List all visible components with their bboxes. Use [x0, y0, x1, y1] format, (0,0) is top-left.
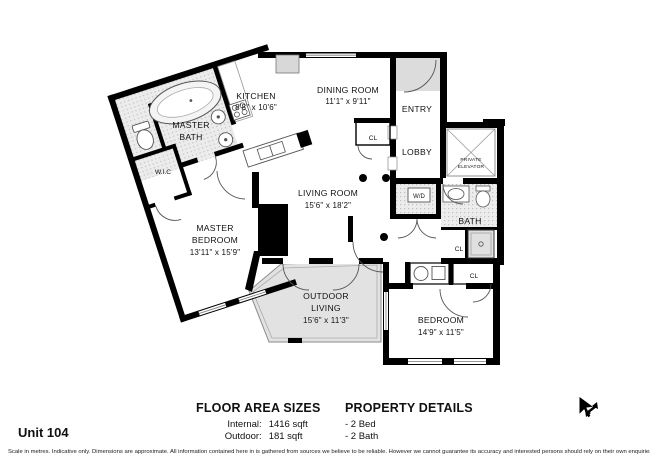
master-bedroom-label-2: BEDROOM: [192, 235, 238, 245]
kitchen-label: KITCHEN: [236, 91, 275, 101]
outdoor-label: Outdoor:: [212, 431, 262, 443]
living-label: LIVING ROOM: [298, 188, 358, 198]
dining-label: DINING ROOM: [317, 85, 379, 95]
outdoor-label-1: OUTDOOR: [303, 291, 349, 301]
structural-columns: [359, 174, 390, 241]
fridge-icon: [276, 55, 299, 73]
floor-area-sizes: FLOOR AREA SIZES Internal: 1416 sqft Out…: [196, 401, 321, 442]
mouse-cursor-icon: [575, 393, 605, 423]
bedroom-label: BEDROOM: [418, 315, 464, 325]
outdoor-dims: 15'6" x 11'3": [303, 316, 349, 325]
laundry-label: W/D: [413, 194, 425, 200]
kitchen-dims: 8'8" x 10'6": [235, 103, 277, 112]
laundry-door-arc-left: [398, 219, 417, 238]
master-entry-door-arc: [217, 171, 245, 199]
bath-sink-icon: [448, 189, 464, 200]
internal-value: 1416 sqft: [269, 419, 321, 431]
toilet2-icon: [476, 186, 490, 191]
floor-area-title: FLOOR AREA SIZES: [196, 401, 321, 415]
bedroom-door-arc: [440, 289, 468, 317]
elevator-label-1: PRIVATE: [460, 157, 481, 163]
wic-label: W.I.C: [155, 169, 171, 176]
property-details-title: PROPERTY DETAILS: [345, 401, 473, 415]
master-bath-label-2: BATH: [179, 132, 202, 142]
entry-label: ENTRY: [402, 104, 432, 114]
master-bedroom-dims: 13'11" x 15'9": [190, 248, 241, 257]
internal-label: Internal:: [212, 419, 262, 431]
outdoor-label-2: LIVING: [311, 303, 341, 313]
master-bedroom-label-1: MASTER: [196, 223, 233, 233]
floorplan-drawing: KITCHEN 8'8" x 10'6" DINING ROOM 11'1" x…: [0, 0, 650, 463]
bath-label: BATH: [458, 216, 481, 226]
bedroom-dims: 14'9" x 11'5": [418, 328, 464, 337]
lobby-label: LOBBY: [402, 147, 432, 157]
property-details: PROPERTY DETAILS - 2 Bed - 2 Bath: [345, 401, 473, 442]
outdoor-living-area: [249, 261, 381, 343]
property-item-bed: - 2 Bed: [345, 419, 473, 431]
entry-vestibule: [396, 58, 440, 91]
hall-closet-label: CL: [455, 246, 464, 253]
master-bath-label-1: MASTER: [172, 120, 209, 130]
shower-icon: [468, 230, 494, 258]
disclaimer-text: Scale in metres. Indicative only. Dimens…: [8, 449, 648, 455]
living-dims: 15'6" x 18'2": [305, 201, 351, 210]
unit-number: Unit 104: [18, 425, 69, 440]
floorplan-page: KITCHEN 8'8" x 10'6" DINING ROOM 11'1" x…: [0, 0, 650, 463]
outdoor-value: 181 sqft: [269, 431, 321, 443]
dining-closet-door-arc: [358, 146, 372, 159]
dining-closet-label: CL: [369, 135, 378, 142]
bedroom-closet-label: CL: [470, 273, 479, 280]
kitchen-island: [243, 130, 313, 167]
property-item-bath: - 2 Bath: [345, 431, 473, 443]
elevator-label-2: ELEVATOR: [458, 164, 485, 170]
laundry-door-arc-right: [417, 219, 436, 238]
bedroom-closet-fixtures: [410, 263, 449, 284]
dining-dims: 11'1" x 9'11": [325, 97, 370, 106]
